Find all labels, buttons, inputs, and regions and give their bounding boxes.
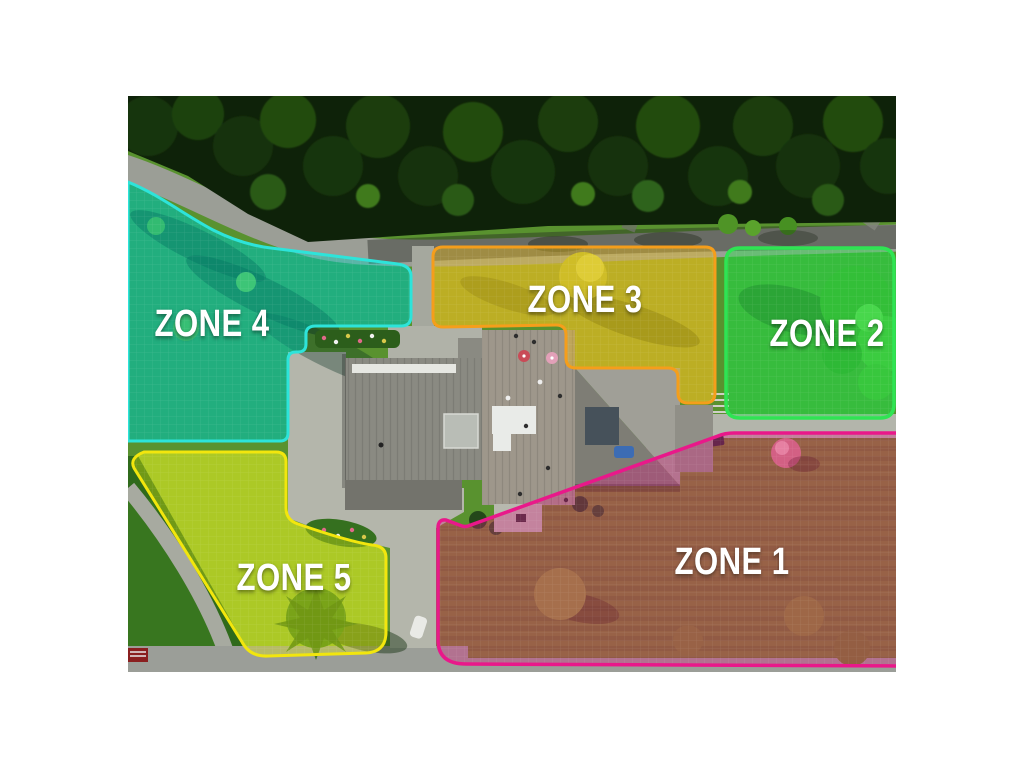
red-truck <box>128 648 148 662</box>
zone-5-label: ZONE 5 <box>237 557 352 599</box>
zone-4-label: ZONE 4 <box>155 303 270 345</box>
aerial-zone-map-page: ZONE 4 ZONE 3 ZONE 2 ZONE 1 ZONE 5 <box>0 0 1024 768</box>
left-wing-lower <box>345 480 462 510</box>
zone-2-label: ZONE 2 <box>770 313 885 355</box>
deck-skylight <box>492 406 536 434</box>
left-skylight <box>444 414 478 448</box>
zone-3-label: ZONE 3 <box>528 279 643 321</box>
dark-panel <box>585 407 619 445</box>
zone-1-label: ZONE 1 <box>675 541 790 583</box>
aerial-photo: ZONE 4 ZONE 3 ZONE 2 ZONE 1 ZONE 5 <box>128 96 896 672</box>
blue-object <box>614 446 634 458</box>
